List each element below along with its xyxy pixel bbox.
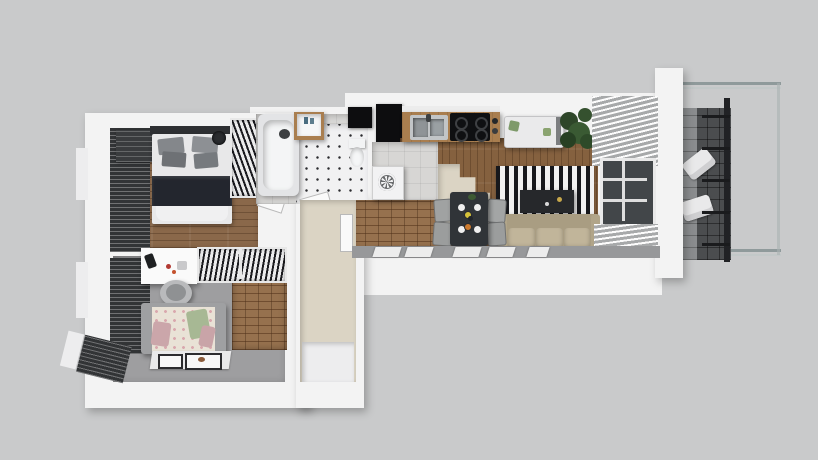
table-plant [468, 194, 476, 200]
bathtub-basin [263, 120, 294, 190]
office-chair-seat [166, 284, 186, 301]
entrance-floor [302, 342, 354, 382]
window-mullion [603, 178, 647, 181]
bench-cushion-green [543, 128, 551, 136]
black-cabinet [348, 107, 372, 128]
tall-kitchen-unit [376, 104, 402, 142]
edge-mat [372, 247, 401, 257]
bed-sheet-fold [156, 206, 228, 221]
window-mullion [622, 161, 625, 221]
window-mullion [603, 199, 647, 202]
cooktop-burner [475, 129, 488, 142]
bed-pillow [162, 151, 187, 168]
balcony-rail-rung [702, 179, 730, 182]
poster-art [198, 357, 205, 362]
dining-chair [486, 221, 507, 246]
bed-pillow [193, 152, 218, 169]
counter-shelf-items [492, 128, 498, 134]
counter-shelf-items [492, 118, 498, 124]
sink-basin [430, 119, 444, 136]
balcony-rail-rung [702, 211, 730, 214]
bedside-stool [212, 131, 226, 145]
desk-items [177, 261, 187, 270]
balcony-rail-rung [702, 243, 730, 246]
plant [560, 132, 576, 148]
washing-machine-drum-icon [378, 173, 396, 191]
dinner-plate [474, 204, 481, 211]
dining-chair [486, 198, 507, 223]
bathtub-faucet [279, 129, 290, 139]
bench-cushion-green [508, 120, 520, 132]
washbasin-bottles [304, 117, 308, 124]
edge-mat [452, 247, 481, 257]
washbasin [297, 114, 321, 136]
kids-room-wardrobe [197, 247, 287, 283]
poster-frame [158, 354, 183, 369]
desk-items [172, 270, 176, 274]
food-bowl-orange [464, 223, 472, 231]
glass-railing-top-edge2 [683, 87, 781, 89]
console-decor [545, 202, 549, 206]
hall-brick-wall [352, 200, 440, 250]
balcony-rail-rung [702, 147, 730, 150]
window-sill [76, 262, 88, 318]
floor-plan-render [0, 0, 818, 460]
balcony-concrete-strip [683, 108, 697, 260]
louver-blinds-top-clip [592, 96, 658, 166]
daybed-pillow-pink [150, 321, 171, 347]
dinner-plate [474, 226, 481, 233]
glass-railing-right-edge [777, 83, 780, 255]
balcony-rail-rung [702, 115, 730, 118]
washbasin-bottles [310, 118, 314, 124]
edge-mat [486, 247, 515, 257]
cooktop-burner [455, 129, 468, 142]
console-decor-gold [557, 197, 562, 202]
table-vase [468, 216, 473, 221]
toilet-bowl [350, 147, 364, 167]
living-window [600, 158, 656, 230]
glass-railing-top-edge [683, 82, 781, 85]
louver-blinds-top [592, 96, 658, 166]
edge-mat [526, 247, 549, 257]
plant [578, 108, 592, 122]
desk-items [166, 264, 171, 269]
dinner-plate [458, 204, 465, 211]
edge-mat [404, 247, 433, 257]
bed-blanket [152, 176, 232, 206]
wardrobe-divider [239, 247, 242, 279]
sink-faucet [426, 114, 431, 122]
kids-room-brick-wall [232, 276, 287, 350]
window-sill [76, 148, 88, 200]
